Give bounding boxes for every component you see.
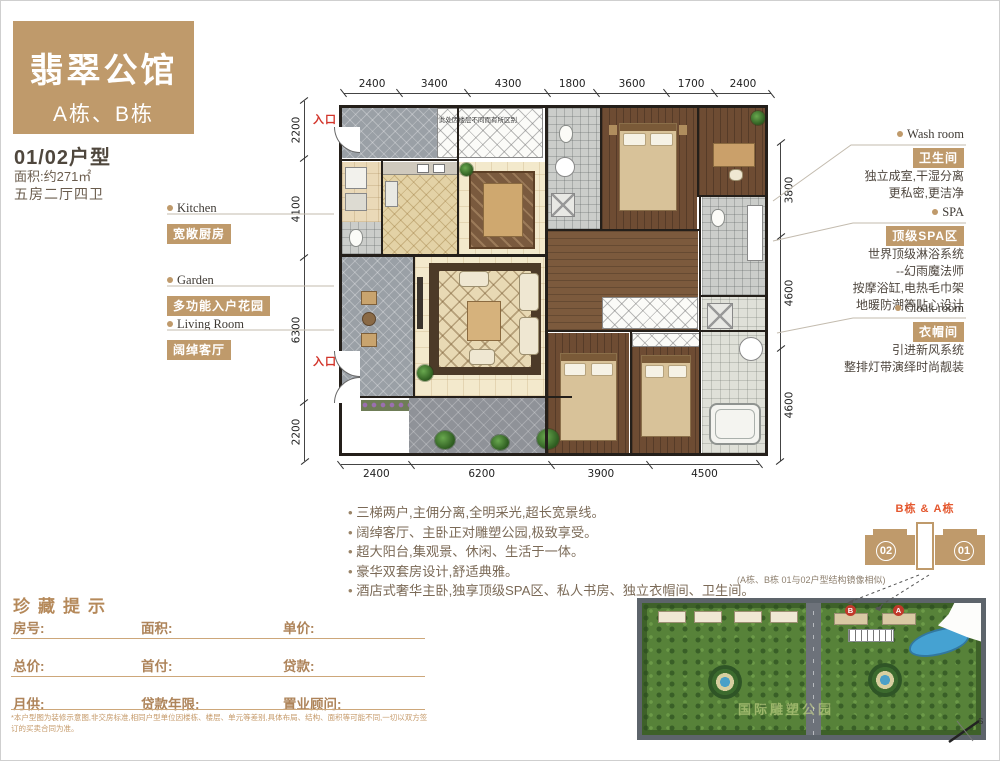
washroom-label-en: Wash room — [907, 127, 964, 141]
plan-note: 此处因楼层不同而有所区别 — [439, 114, 567, 124]
bed — [619, 123, 677, 211]
wall — [339, 254, 546, 257]
entry-door — [334, 377, 360, 403]
wall — [545, 229, 699, 231]
kitchen-badge: 宽敞厨房 — [167, 224, 231, 244]
tower-footprint: 02 01 — [861, 520, 989, 572]
kitchen-sink — [433, 164, 445, 173]
dim-value: 4100 — [290, 195, 302, 222]
site-watermark: 国际雕塑公园 — [738, 699, 834, 718]
site-building — [658, 611, 686, 623]
wall — [339, 159, 458, 161]
garden-table — [362, 312, 376, 326]
site-colonnade — [848, 629, 894, 642]
wall — [545, 330, 768, 332]
tower-subtitle: A栋、B栋 — [13, 98, 194, 128]
shower — [707, 303, 733, 329]
dim-value: 6200 — [468, 468, 495, 480]
toilet — [711, 209, 725, 227]
sink — [555, 157, 575, 177]
dim-value: 2400 — [363, 468, 390, 480]
washroom-desc: 独立成室,干湿分离 — [865, 168, 964, 185]
floorplan-flyer: 翡翠公馆 A栋、B栋 01/02户型 面积:约271㎡ 五房二厅四卫 Kitch… — [0, 0, 1000, 761]
dim-value: 4600 — [783, 392, 795, 419]
entry-label-top: 入口 — [313, 111, 337, 127]
anno-living: Living Room 阔绰客厅 — [167, 315, 244, 360]
cloakroom-desc: 整排灯带演绎时尚靓装 — [844, 359, 964, 376]
wall — [699, 195, 701, 453]
site-marker-a: A — [893, 605, 904, 616]
dim-value: 3900 — [588, 468, 615, 480]
dim-line-left: 2200 4100 6300 2200 — [288, 101, 305, 461]
toilet — [349, 229, 363, 247]
selling-point: 阔绰客厅、主卧正对雕塑公园,极致享受。 — [348, 523, 918, 543]
sink — [739, 337, 763, 361]
dim-value: 2200 — [290, 418, 302, 445]
wall — [413, 257, 415, 397]
vanity-counter — [747, 205, 763, 261]
armchair — [459, 271, 489, 287]
form-rule — [11, 676, 425, 677]
wall — [697, 195, 768, 197]
nightstand — [609, 125, 617, 135]
garden-label-en: Garden — [177, 273, 214, 287]
form-field-loanterm: 贷款年限: — [141, 693, 200, 713]
selling-point: 三梯两户,主佣分离,全明采光,超长宽景线。 — [348, 503, 918, 523]
site-building — [770, 611, 798, 623]
unit-area: 面积:约271㎡ — [14, 166, 91, 185]
dim-value: 4300 — [495, 78, 522, 90]
spa-desc: 按摩浴缸,电热毛巾架 — [853, 280, 964, 297]
bullet-dot-icon — [167, 321, 173, 327]
form-field-area: 面积: — [141, 617, 173, 637]
room-cloak — [602, 297, 698, 329]
dim-line-right: 3800 4600 4600 — [780, 143, 797, 461]
unit-01-circle: 01 — [954, 541, 974, 561]
room-kitchen — [383, 162, 457, 254]
form-field-consultant: 置业顾问: — [283, 693, 342, 713]
form-title: 珍藏提示 — [13, 592, 113, 617]
project-title-block: 翡翠公馆 A栋、B栋 — [13, 21, 194, 134]
site-plan: B A 国际雕塑公园 — [637, 598, 986, 740]
anno-spa: SPA 顶级SPA区 世界顶级淋浴系统 --幻雨魔法师 按摩浴缸,电热毛巾架 地… — [853, 205, 964, 314]
kitchen-label-en: Kitchen — [177, 201, 217, 215]
armchair — [469, 349, 495, 365]
dim-value: 6300 — [290, 317, 302, 344]
form-field-unitprice: 单价: — [283, 617, 315, 637]
anno-kitchen: Kitchen 宽敞厨房 — [167, 199, 231, 244]
nightstand — [679, 125, 687, 135]
wall — [545, 105, 548, 453]
wall — [700, 295, 768, 297]
form-rule — [11, 638, 425, 639]
spa-desc: 世界顶级淋浴系统 — [853, 246, 964, 263]
cabinet — [345, 193, 367, 211]
selling-point: 超大阳台,集观景、休闲、生活于一体。 — [348, 542, 918, 562]
bullet-dot-icon — [167, 205, 173, 211]
form-field-total: 总价: — [13, 655, 45, 675]
plant — [460, 163, 473, 176]
kitchen-sink — [417, 164, 429, 173]
dim-value: 2400 — [730, 78, 757, 90]
dim-line-top: 2400 3400 4300 1800 3600 1700 2400 — [344, 77, 771, 94]
floor-plan: 此处因楼层不同而有所区别 — [331, 101, 776, 461]
sofa — [519, 273, 539, 311]
coffee-table — [467, 301, 501, 341]
dim-value: 3400 — [421, 78, 448, 90]
bullet-dot-icon — [895, 305, 901, 311]
spa-desc: --幻雨魔法师 — [853, 263, 964, 280]
form-field-downpay: 首付: — [141, 655, 173, 675]
plant — [751, 111, 765, 125]
entry-label-mid: 入口 — [313, 353, 337, 369]
site-plaza — [868, 663, 902, 697]
site-building — [734, 611, 762, 623]
anno-garden: Garden 多功能入户花园 — [167, 271, 270, 316]
cloakroom-desc: 引进新风系统 — [844, 342, 964, 359]
elevator-core — [916, 522, 934, 570]
bed — [641, 355, 691, 437]
dim-value: 2400 — [359, 78, 386, 90]
washroom-desc: 更私密,更洁净 — [865, 185, 964, 202]
wall — [381, 161, 383, 255]
site-plaza — [708, 665, 742, 699]
garden-chair — [361, 333, 377, 347]
bush — [491, 435, 509, 450]
tower-key-diagram: B栋 & A栋 02 01 — [861, 500, 989, 572]
entry-door — [334, 351, 360, 377]
form-field-loan: 贷款: — [283, 655, 315, 675]
spa-badge: 顶级SPA区 — [886, 226, 964, 246]
plant — [417, 365, 433, 381]
site-building — [694, 611, 722, 623]
dim-value: 3800 — [783, 177, 795, 204]
cloakroom-badge: 衣帽间 — [913, 322, 964, 342]
form-rule — [11, 709, 425, 710]
dim-value: 4600 — [783, 280, 795, 307]
bullet-dot-icon — [167, 277, 173, 283]
site-marker-b: B — [845, 605, 856, 616]
desk-chair — [729, 169, 743, 181]
dim-value: 1700 — [678, 78, 705, 90]
bush — [435, 431, 455, 449]
wall — [339, 396, 572, 398]
shower — [551, 193, 575, 217]
dining-table — [483, 183, 523, 237]
dim-value: 3600 — [619, 78, 646, 90]
wall — [697, 105, 699, 197]
anno-cloakroom: Cloak room 衣帽间 引进新风系统 整排灯带演绎时尚靓装 — [844, 301, 964, 376]
bathtub — [709, 403, 761, 445]
wall — [457, 105, 459, 255]
anno-washroom: Wash room 卫生间 独立成室,干湿分离 更私密,更洁净 — [865, 127, 964, 202]
sofa — [519, 317, 539, 355]
entry-door — [334, 127, 360, 153]
bullet-dot-icon — [932, 209, 938, 215]
wardrobe-strip — [632, 333, 700, 347]
project-title: 翡翠公馆 — [13, 43, 194, 92]
garden-badge: 多功能入户花园 — [167, 296, 270, 316]
garden-chair — [361, 291, 377, 305]
cloakroom-label-en: Cloak room — [905, 301, 964, 315]
tv-cabinet — [417, 277, 423, 329]
form-field-monthly: 月供: — [13, 693, 45, 713]
spa-label-en: SPA — [942, 205, 964, 219]
unit-rooms: 五房二厅四卫 — [14, 184, 104, 204]
dim-value: 2200 — [290, 117, 302, 144]
kitchen-stove — [385, 181, 398, 207]
tower-key-label: B栋 & A栋 — [861, 500, 989, 516]
tower-key-caption: (A栋、B栋 01与02户型结构镜像相似) — [737, 573, 886, 586]
wall — [630, 330, 632, 453]
bullet-dot-icon — [897, 131, 903, 137]
bush — [537, 429, 559, 449]
disclaimer: *本户型图为装修示意图,非交房标准,相同户型单位因楼栋、楼层、单元等差别,具体布… — [11, 712, 431, 734]
living-label-en: Living Room — [177, 317, 244, 331]
washer — [345, 167, 367, 189]
unit-02-circle: 02 — [876, 541, 896, 561]
form-field-roomno: 房号: — [13, 617, 45, 637]
compass-label: S — [978, 717, 983, 726]
living-badge: 阔绰客厅 — [167, 340, 231, 360]
dim-value: 1800 — [559, 78, 586, 90]
flower-bed — [361, 400, 409, 411]
dim-value: 4500 — [691, 468, 718, 480]
desk — [713, 143, 755, 167]
wall — [600, 105, 602, 231]
washroom-badge: 卫生间 — [913, 148, 964, 168]
toilet — [559, 125, 573, 143]
dim-line-bottom: 2400 6200 3900 4500 — [341, 464, 759, 481]
